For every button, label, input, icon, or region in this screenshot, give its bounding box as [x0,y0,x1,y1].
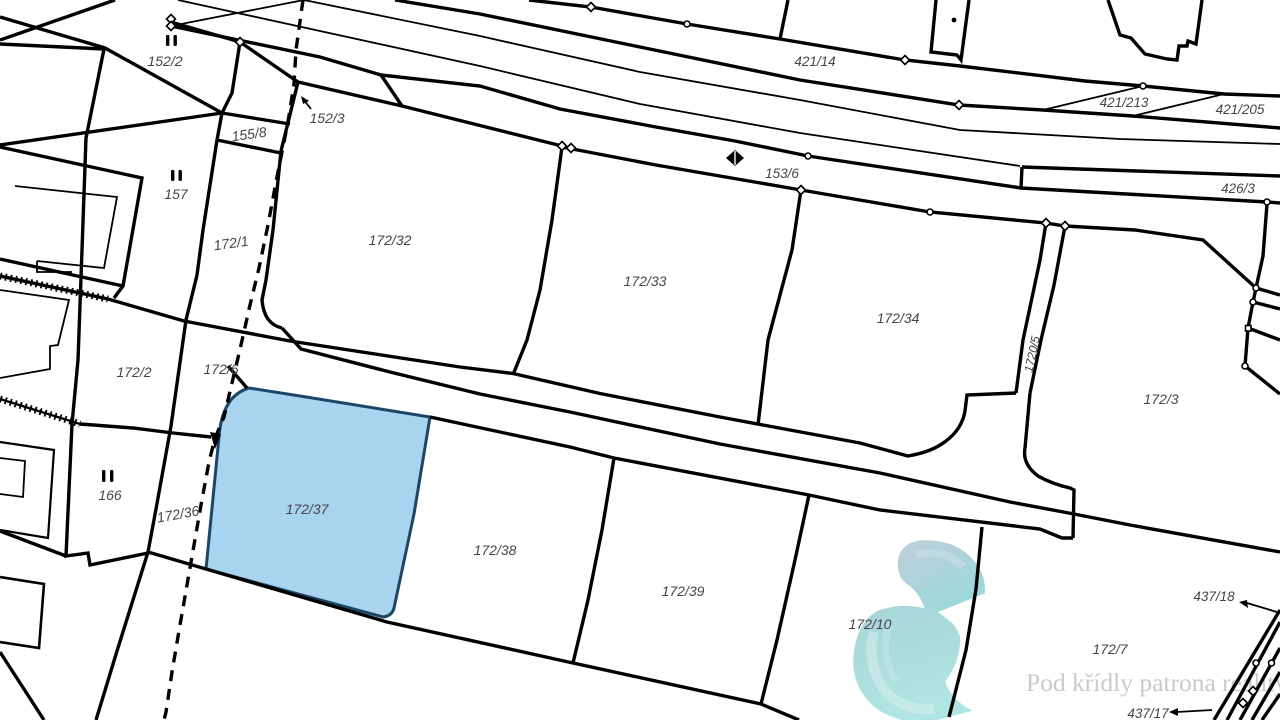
svg-text:172/6: 172/6 [203,361,238,377]
svg-text:172/7: 172/7 [1092,641,1128,657]
svg-text:166: 166 [98,487,122,503]
svg-text:421/14: 421/14 [794,54,835,69]
svg-text:172/37: 172/37 [286,501,330,517]
svg-text:153/6: 153/6 [765,166,799,181]
svg-text:157: 157 [164,186,189,202]
svg-text:172/33: 172/33 [624,273,667,289]
svg-text:172/3: 172/3 [1143,391,1178,407]
svg-text:152/3: 152/3 [309,110,344,126]
svg-text:421/213: 421/213 [1100,95,1149,110]
svg-text:426/3: 426/3 [1221,181,1255,196]
svg-text:172/39: 172/39 [662,583,705,599]
svg-text:421/205: 421/205 [1216,102,1265,117]
svg-text:172/38: 172/38 [474,542,517,558]
svg-text:437/18: 437/18 [1193,589,1235,604]
svg-text:172/32: 172/32 [369,232,412,248]
svg-text:172/2: 172/2 [116,364,151,380]
svg-text:172/34: 172/34 [877,310,920,326]
svg-text:437/17: 437/17 [1127,706,1169,720]
svg-text:172/10: 172/10 [849,616,892,632]
svg-text:152/2: 152/2 [147,53,182,69]
